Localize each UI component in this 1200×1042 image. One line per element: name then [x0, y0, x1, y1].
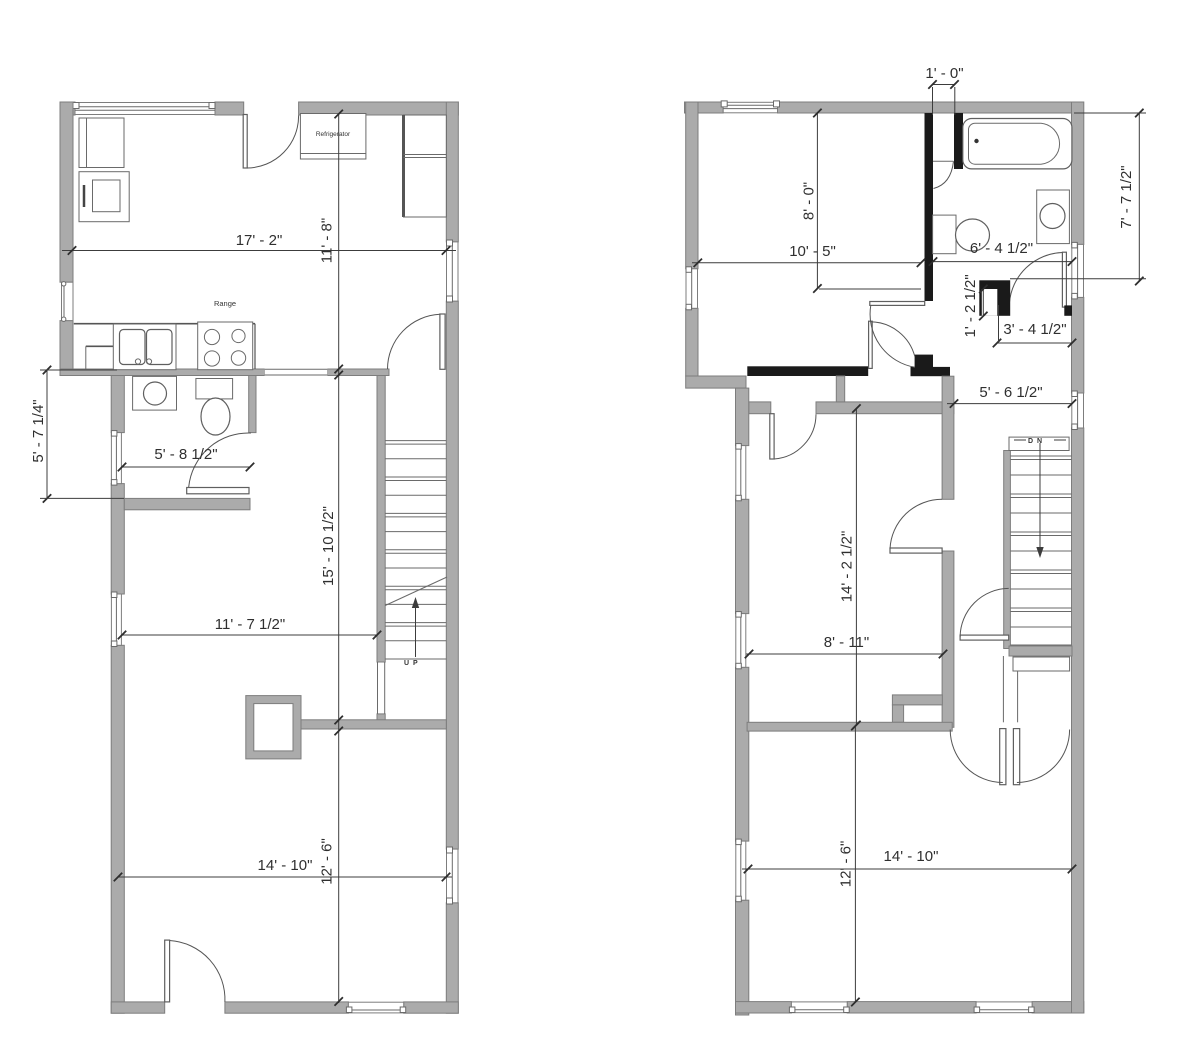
svg-text:Range: Range	[214, 299, 236, 308]
svg-text:3' - 4 1/2": 3' - 4 1/2"	[1003, 321, 1066, 338]
svg-text:12' - 6": 12' - 6"	[837, 841, 854, 888]
svg-text:1' - 2 1/2": 1' - 2 1/2"	[962, 274, 979, 337]
svg-text:7' - 7 1/2": 7' - 7 1/2"	[1118, 165, 1135, 228]
svg-text:Refrigerator: Refrigerator	[316, 131, 351, 138]
svg-text:1' - 0": 1' - 0"	[925, 65, 963, 82]
svg-text:8' - 11": 8' - 11"	[824, 634, 869, 651]
svg-text:5' - 7 1/4": 5' - 7 1/4"	[30, 399, 47, 462]
svg-text:U P: U P	[404, 660, 419, 667]
svg-text:5' - 6 1/2": 5' - 6 1/2"	[979, 384, 1042, 401]
svg-text:14' - 10": 14' - 10"	[884, 848, 939, 865]
svg-text:D N: D N	[1028, 438, 1043, 445]
svg-text:6' - 4 1/2": 6' - 4 1/2"	[970, 240, 1033, 257]
svg-text:14' - 2 1/2": 14' - 2 1/2"	[838, 531, 855, 603]
svg-text:11' - 7 1/2": 11' - 7 1/2"	[215, 616, 285, 633]
svg-text:12' - 6": 12' - 6"	[319, 838, 336, 885]
svg-text:17' - 2": 17' - 2"	[236, 232, 283, 249]
svg-text:14' - 10": 14' - 10"	[258, 857, 313, 874]
svg-text:10' - 5": 10' - 5"	[789, 243, 836, 260]
svg-text:11' - 8": 11' - 8"	[319, 218, 336, 263]
svg-text:5' - 8 1/2": 5' - 8 1/2"	[154, 446, 217, 463]
svg-text:15' - 10 1/2": 15' - 10 1/2"	[320, 506, 337, 586]
svg-text:8' - 0": 8' - 0"	[801, 182, 818, 220]
